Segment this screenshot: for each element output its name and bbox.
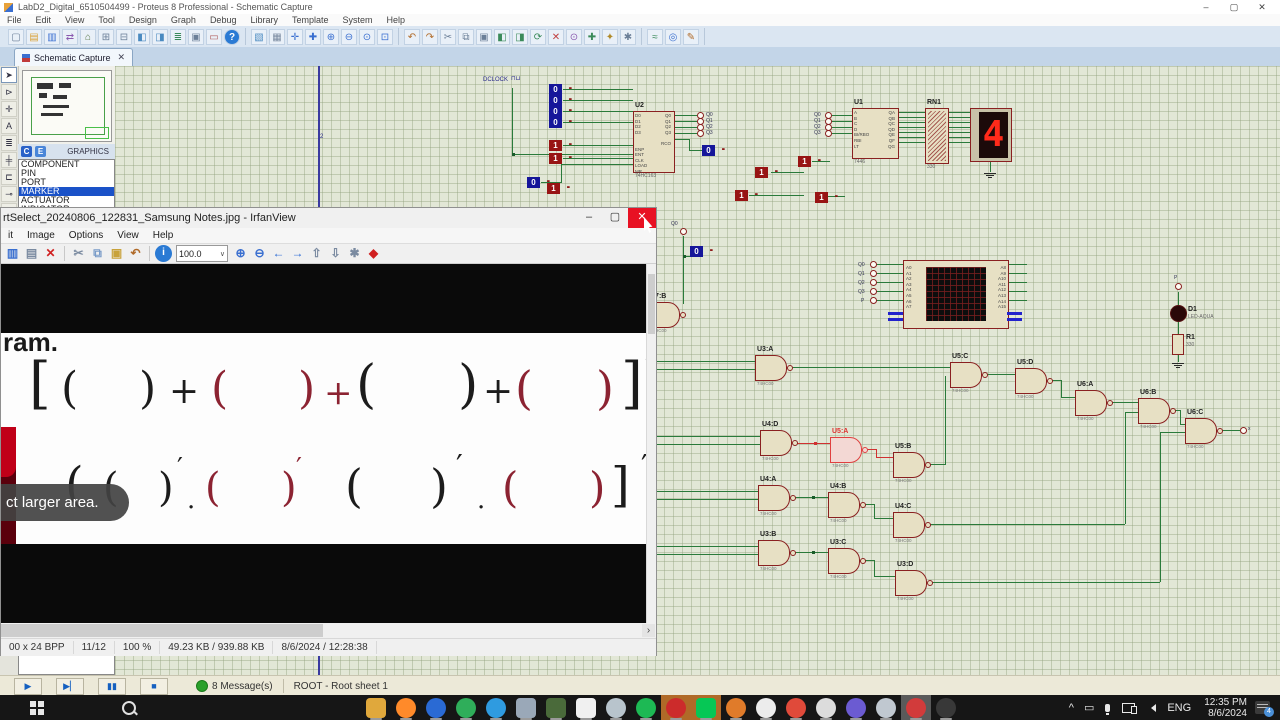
gate-part-number: 74HC00 [897, 596, 914, 601]
bus-mode-icon[interactable]: ╪ [1, 152, 17, 168]
paste-icon[interactable]: ▣ [108, 245, 125, 262]
wire [683, 236, 684, 304]
wire-label-mode-icon[interactable]: A [1, 118, 17, 134]
nand-gate-U5:B[interactable] [893, 452, 925, 478]
terminal-label: P [1174, 275, 1177, 281]
origin-icon[interactable]: ✛ [287, 29, 303, 45]
junction-dot [683, 255, 686, 258]
logic-state-1[interactable]: 1 [549, 153, 562, 164]
chip-part-number: 7446 [854, 159, 865, 165]
grid-toggle-icon[interactable]: ▦ [269, 29, 285, 45]
irfanview-menu-help[interactable]: Help [146, 230, 181, 241]
gate-part-number: 74HC00 [757, 381, 774, 386]
ground-symbol [984, 172, 996, 178]
gate-refdes: U4:D [762, 421, 778, 428]
menu-library[interactable]: Library [243, 15, 285, 25]
new-design-icon[interactable]: ▢ [8, 29, 24, 45]
taskbar-app-remote-desktop[interactable] [511, 695, 541, 720]
proteus-window-buttons: –▢✕ [1192, 0, 1276, 14]
proteus-toolbar: ▢▤▥⇄⌂⊞⊟◧◨≣▣▭?▧▦✛✚⊕⊖⊙⊡↶↷✂⧉▣◧◨⟳✕⊙✚✦✱≈◎✎ [0, 26, 1280, 47]
nand-gate-U3:A[interactable] [755, 355, 787, 381]
text-script-mode-icon[interactable]: ≣ [1, 135, 17, 151]
sim-stop-button[interactable]: ■ [140, 678, 168, 695]
subcircuit-mode-icon[interactable]: ⊏ [1, 169, 17, 185]
wire [749, 195, 804, 196]
resistor-refdes: R1 [1186, 334, 1195, 341]
equation-glyph: ) [298, 363, 315, 414]
toolbar-group: ↶↷✂⧉▣◧◨⟳✕⊙✚✦✱ [399, 28, 642, 45]
taskbar-app-app-dots[interactable] [601, 695, 631, 720]
selection-mode-icon[interactable]: ➤ [1, 67, 17, 83]
terminal-label: Q0 [858, 262, 865, 268]
wire [794, 497, 828, 498]
menu-tool[interactable]: Tool [91, 15, 122, 25]
gate-refdes: U3:B [760, 531, 776, 538]
wire [897, 137, 925, 138]
wire [874, 518, 893, 519]
terminal-P[interactable] [870, 297, 877, 304]
zoom-area-icon[interactable]: ⊡ [377, 29, 393, 45]
status-field: 11/12 [74, 641, 115, 654]
terminal-Q3[interactable] [697, 130, 704, 137]
wire [1178, 321, 1179, 334]
wire [563, 89, 633, 90]
junction-dot-mode-icon[interactable]: ✛ [1, 101, 17, 117]
menu-view[interactable]: View [58, 15, 91, 25]
equation-glyph: ) [596, 361, 614, 415]
wire [897, 142, 925, 143]
irfanview-title: rtSelect_20240806_122831_Samsung Notes.j… [1, 212, 296, 224]
chevron-down-icon: ∨ [220, 250, 225, 258]
logic-state-0[interactable]: 0 [690, 246, 703, 257]
resnet-value: 330 [927, 164, 935, 170]
wire [947, 117, 970, 118]
wire [929, 524, 1125, 525]
irfanview-menu-it[interactable]: it [1, 230, 20, 241]
toolbar-group: ≈◎✎ [642, 28, 705, 45]
nand-gate-U5:A[interactable] [830, 437, 862, 463]
last-image-icon[interactable]: ⇩ [327, 245, 344, 262]
zoom-level-combo[interactable]: 100.0∨ [176, 245, 228, 262]
gate-refdes: U3:C [830, 539, 846, 546]
nand-gate-U3:C[interactable] [828, 548, 860, 574]
print-icon[interactable]: ▤ [23, 245, 40, 262]
block-delete-icon[interactable]: ✕ [548, 29, 564, 45]
prev-sheet-icon[interactable]: ◧ [134, 29, 150, 45]
wire [673, 115, 697, 116]
wire-autorouter-icon[interactable]: ≈ [647, 29, 663, 45]
zoom-out-icon[interactable]: ⊖ [341, 29, 357, 45]
wire [657, 554, 758, 555]
wire [673, 139, 689, 140]
equation-glyph: ) [589, 463, 605, 512]
logic-state-1[interactable]: 1 [815, 192, 828, 203]
logic-state-0[interactable]: 0 [702, 145, 715, 156]
irfanview-maximize-button[interactable]: ▢ [602, 208, 628, 228]
search-tag-icon[interactable]: ◎ [665, 29, 681, 45]
preview-mark [41, 113, 63, 116]
zoom-all-icon[interactable]: ⊙ [359, 29, 375, 45]
block-rotate-icon[interactable]: ⟳ [530, 29, 546, 45]
bus-connector [888, 318, 903, 321]
taskbar-app-app-fox[interactable] [751, 695, 781, 720]
schematic-overview-preview[interactable] [22, 70, 112, 142]
irfanview-menu-options[interactable]: Options [62, 230, 110, 241]
chip-right-pins: QA QB QC QD QE QF QG [852, 110, 895, 149]
terminal-label: x [1248, 426, 1251, 432]
cut-icon[interactable]: ✂ [440, 29, 456, 45]
open-design-icon[interactable]: ▤ [26, 29, 42, 45]
browser-compass-icon [486, 698, 506, 718]
menu-debug[interactable]: Debug [203, 15, 244, 25]
equation-glyph: · [477, 493, 485, 523]
toolbar-group: ▧▦✛✚⊕⊖⊙⊡ [246, 28, 399, 45]
save-icon[interactable]: ▥ [4, 245, 21, 262]
irfanview-menu-image[interactable]: Image [20, 230, 62, 241]
nand-gate-U3:B[interactable] [758, 540, 790, 566]
taskbar-app-app-blue-orb[interactable] [421, 695, 451, 720]
preview-mark [39, 93, 47, 98]
sim-step-button[interactable]: ▶▏ [56, 678, 84, 695]
equation-glyph: ] [611, 457, 630, 513]
zoom-in-icon[interactable]: ⊕ [232, 245, 249, 262]
proteus-app-icon [4, 3, 13, 12]
prev-image-icon[interactable]: ← [270, 245, 287, 262]
app-green-orb-icon [456, 698, 476, 718]
irfanview-bird-icon[interactable]: ◆ [365, 245, 382, 262]
copy-icon[interactable]: ⧉ [89, 245, 106, 262]
terminal-Q0[interactable] [870, 261, 877, 268]
chip-right-pins: Q0 Q1 Q2 Q3 RCO [633, 113, 671, 147]
taskbar-app-app-search-orange[interactable] [721, 695, 751, 720]
equation-glyph: ′ [296, 453, 302, 483]
gate-part-number: 74HC00 [1140, 424, 1157, 429]
menu-system[interactable]: System [336, 15, 380, 25]
first-image-icon[interactable]: ⇧ [308, 245, 325, 262]
terminal-x[interactable] [1240, 427, 1247, 434]
tray-chevron-icon[interactable]: ^ [1069, 702, 1074, 714]
wire [563, 145, 633, 146]
import-section-icon[interactable]: ⇄ [62, 29, 78, 45]
matrix-display-chip[interactable]: A0 A1 A2 A3 A4 A5 A6 A7A8 A9 A10 A11 A12… [903, 260, 1009, 329]
property-assignment-icon[interactable]: ✎ [683, 29, 699, 45]
terminal-Q3[interactable] [825, 130, 832, 137]
remove-sheet-icon[interactable]: ⊟ [116, 29, 132, 45]
wire [875, 273, 903, 274]
status-field: 8/6/2024 / 12:28:38 [273, 641, 376, 654]
remote-desktop-icon [516, 698, 536, 718]
toolbar-group: ▢▤▥⇄⌂⊞⊟◧◨≣▣▭? [3, 28, 246, 45]
logic-state-0[interactable]: 0 [549, 117, 562, 128]
design-explorer-icon[interactable]: ≣ [170, 29, 186, 45]
tab-close-icon[interactable]: ✕ [118, 52, 126, 63]
info-icon[interactable]: i [155, 245, 172, 262]
wire [1007, 282, 1027, 283]
terminal-label: Q3 [858, 289, 865, 295]
proteus-titlebar: LabD2_Digital_6510504499 - Proteus 8 Pro… [0, 0, 1280, 14]
led-type: LED-AQUA [1188, 314, 1214, 320]
status-field: 00 x 24 BPP [1, 641, 74, 654]
taskbar-app-proteus[interactable] [541, 695, 571, 720]
speaker-icon[interactable] [1147, 704, 1156, 712]
wire [1160, 432, 1185, 433]
notification-badge: 4 [1264, 707, 1274, 717]
hscroll-right-arrow[interactable]: › [642, 624, 655, 637]
bus-connector [888, 312, 903, 315]
taskbar-app-firefox[interactable] [391, 695, 421, 720]
equation-glyph: ( [515, 361, 533, 415]
resistor-R1[interactable] [1172, 334, 1184, 355]
taskbar-app-app-purple-bird[interactable] [841, 695, 871, 720]
taskbar-search-icon[interactable] [122, 701, 136, 715]
taskbar-app-app-dark-dot[interactable] [931, 695, 961, 720]
decompose-icon[interactable]: ✱ [620, 29, 636, 45]
wire [689, 139, 690, 150]
junction-dot [812, 496, 815, 499]
delete-icon[interactable]: ✕ [42, 245, 59, 262]
messages-icon[interactable] [196, 680, 208, 692]
ground-symbol [1172, 362, 1184, 368]
irfanview-close-button[interactable]: ✕ [628, 208, 656, 228]
menu-graph[interactable]: Graph [164, 15, 203, 25]
nand-gate-U4:C[interactable] [893, 512, 925, 538]
taskbar-app-notepad[interactable] [571, 695, 601, 720]
terminal-Q2[interactable] [870, 279, 877, 286]
nand-gate-U3:D[interactable] [895, 570, 927, 596]
tray-tablet-icon[interactable]: ▭ [1084, 701, 1094, 714]
seven-segment-digit: 4 [979, 112, 1008, 158]
preview-mark [43, 105, 69, 108]
gate-refdes: U4:A [760, 476, 776, 483]
nand-gate-U4:A[interactable] [758, 485, 790, 511]
copy-icon[interactable]: ⧉ [458, 29, 474, 45]
irfanview-vertical-scrollbar[interactable] [646, 264, 656, 623]
wire [791, 367, 950, 368]
new-page-icon[interactable]: ▣ [188, 29, 204, 45]
junction-dot [812, 551, 815, 554]
paste-icon[interactable]: ▣ [476, 29, 492, 45]
toolbar-separator [64, 246, 65, 261]
wire [657, 444, 760, 445]
pan-icon[interactable]: ✚ [305, 29, 321, 45]
terminal-Q1[interactable] [870, 270, 877, 277]
wire [875, 300, 903, 301]
irfanview-menu-view[interactable]: View [110, 230, 146, 241]
spotify-icon [636, 698, 656, 718]
schematic-label: DCLOCK [483, 77, 508, 83]
redraw-icon[interactable]: ▧ [251, 29, 267, 45]
wire [931, 582, 1160, 583]
gate-part-number: 74HC00 [830, 518, 847, 523]
clock-time: 12:35 PM [1204, 697, 1247, 708]
irfanview-titlebar: rtSelect_20240806_122831_Samsung Notes.j… [1, 208, 656, 228]
gate-refdes: U4:C [895, 503, 911, 510]
wire [812, 161, 830, 162]
selected-wire [876, 457, 893, 458]
terminal-label: Q3 [706, 130, 713, 136]
wire [897, 132, 925, 133]
block-copy-icon[interactable]: ◧ [494, 29, 510, 45]
nand-gate-U5:D[interactable] [1015, 368, 1047, 394]
terminal-mode-icon[interactable]: ⊸ [1, 186, 17, 202]
block-move-icon[interactable]: ◨ [512, 29, 528, 45]
logic-state-1[interactable]: 1 [798, 156, 811, 167]
gate-refdes: U5:B [895, 443, 911, 450]
schematic-tab-icon [22, 54, 30, 62]
undo-icon[interactable]: ↶ [127, 245, 144, 262]
gate-refdes: U6:A [1077, 381, 1093, 388]
irfanview-horizontal-scrollbar[interactable]: › [1, 623, 656, 638]
status-field: 100 % [115, 641, 160, 654]
wire [512, 88, 513, 155]
home-page-icon[interactable]: ⌂ [80, 29, 96, 45]
preview-viewport-box [85, 127, 109, 139]
pick-devices-button[interactable]: C [21, 146, 32, 157]
proteus-minimize-button[interactable]: – [1192, 0, 1220, 14]
terminal-label: Q1 [858, 271, 865, 277]
proteus-maximize-button[interactable]: ▢ [1220, 0, 1248, 14]
menu-design[interactable]: Design [122, 15, 164, 25]
terminal-P[interactable] [1175, 283, 1182, 290]
equation-glyph: ) [430, 459, 448, 513]
next-image-icon[interactable]: → [289, 245, 306, 262]
zoom-in-icon[interactable]: ⊕ [323, 29, 339, 45]
led-D1[interactable] [1170, 305, 1187, 322]
seven-segment-display[interactable]: 4 [970, 108, 1012, 162]
packaging-tool-icon[interactable]: ✦ [602, 29, 618, 45]
terminal-label: Q2 [858, 280, 865, 286]
system-tray: ^ ▭ ENG 12:35 PM 8/6/2024 4 [1064, 695, 1280, 720]
menu-edit[interactable]: Edit [29, 15, 59, 25]
new-sheet-icon[interactable]: ⊞ [98, 29, 114, 45]
taskbar-app-app-red-badge[interactable] [901, 695, 931, 720]
taskbar-app-irfanview[interactable] [661, 695, 691, 720]
matrix-right-pins: A8 A9 A10 A11 A12 A13 A14 A15 [998, 265, 1006, 310]
nand-gate-U6:B[interactable] [1138, 398, 1170, 424]
proteus-icon [546, 698, 566, 718]
terminal-Q0[interactable] [680, 228, 687, 235]
edit-devices-button[interactable]: E [35, 146, 46, 157]
logic-state-0[interactable]: 0 [549, 95, 562, 106]
wire [1007, 291, 1027, 292]
wire [657, 369, 755, 370]
wire [947, 137, 970, 138]
redo-icon[interactable]: ↷ [422, 29, 438, 45]
clock[interactable]: 12:35 PM 8/6/2024 [1204, 697, 1247, 719]
irfanview-image-view[interactable]: ram. [()+()+()+()]″ (()′·()′()′·()]′ ct … [1, 264, 656, 623]
cut-icon[interactable]: ✂ [70, 245, 87, 262]
taskbar-app-chrome[interactable] [781, 695, 811, 720]
taskbar-app-spotify[interactable] [631, 695, 661, 720]
gate-part-number: 74HC00 [760, 511, 777, 516]
logic-state-0[interactable]: 0 [527, 177, 540, 188]
messages-count[interactable]: 8 Message(s) [212, 681, 273, 692]
logic-state-0[interactable]: 0 [549, 106, 562, 117]
status-field: 49.23 KB / 939.88 KB [160, 641, 273, 654]
irfanview-toolbar: ▥▤✕✂⧉▣↶i100.0∨⊕⊖←→⇧⇩✱◆ [1, 243, 656, 264]
taskbar-app-app-green-orb[interactable] [451, 695, 481, 720]
wire [657, 436, 760, 437]
start-button-icon[interactable] [30, 701, 44, 715]
wire [561, 164, 562, 183]
graphics-label: GRAPHICS [46, 147, 115, 156]
logic-state-1[interactable]: 1 [549, 140, 562, 151]
zoom-out-icon[interactable]: ⊖ [251, 245, 268, 262]
taskbar-app-app-spider[interactable] [871, 695, 901, 720]
nand-gate-U6:A[interactable] [1075, 390, 1107, 416]
chrome-icon [786, 698, 806, 718]
wire [1178, 292, 1179, 305]
wire [794, 552, 828, 553]
preview-mark [37, 83, 53, 89]
gate-part-number: 74HC00 [760, 566, 777, 571]
app-spider-icon [876, 698, 896, 718]
wire [689, 150, 702, 151]
gate-part-number: 74HC00 [762, 456, 779, 461]
taskbar-app-file-explorer[interactable] [361, 695, 391, 720]
wire [897, 127, 925, 128]
equation-glyph: ( [345, 459, 363, 513]
logic-state-1[interactable]: 1 [755, 167, 768, 178]
notification-center-icon[interactable]: 4 [1255, 701, 1270, 714]
properties-icon[interactable]: ✱ [346, 245, 363, 262]
irfanview-minimize-button[interactable]: – [576, 208, 602, 228]
menu-file[interactable]: File [0, 15, 29, 25]
remove-page-icon[interactable]: ▭ [206, 29, 222, 45]
wire [563, 122, 633, 123]
sim-play-button[interactable]: ▶ [14, 678, 42, 695]
component-mode-icon[interactable]: ⊳ [1, 84, 17, 100]
gate-refdes: U5:A [832, 428, 848, 435]
junction-dot [814, 442, 817, 445]
microphone-icon[interactable] [1105, 704, 1110, 712]
taskbar-app-line[interactable] [691, 695, 721, 720]
firefox-icon [396, 698, 416, 718]
proteus-close-button[interactable]: ✕ [1248, 0, 1276, 14]
nand-gate-U5:C[interactable] [950, 362, 982, 388]
nand-gate-U4:B[interactable] [828, 492, 860, 518]
menu-help[interactable]: Help [380, 15, 413, 25]
taskbar-app-browser-compass[interactable] [481, 695, 511, 720]
logic-state-0[interactable]: 0 [549, 84, 562, 95]
pick-parts-icon[interactable]: ⊙ [566, 29, 582, 45]
sim-pause-button[interactable]: ▮▮ [98, 678, 126, 695]
logic-state-1[interactable]: 1 [735, 190, 748, 201]
resistor-network-RN1[interactable] [925, 108, 949, 164]
terminal-Q3[interactable] [870, 288, 877, 295]
nand-gate-U6:C[interactable] [1185, 418, 1217, 444]
wire [1221, 430, 1240, 431]
network-icon[interactable] [1122, 703, 1135, 713]
next-sheet-icon[interactable]: ◨ [152, 29, 168, 45]
undo-icon[interactable]: ↶ [404, 29, 420, 45]
schematic-label: 2 [320, 134, 323, 140]
nand-gate-U4:D[interactable] [760, 430, 792, 456]
make-device-icon[interactable]: ✚ [584, 29, 600, 45]
equation-glyph: ) [158, 465, 174, 511]
gate-part-number: 74HC00 [830, 574, 847, 579]
equation-glyph: ( [205, 465, 221, 511]
logic-state-1[interactable]: 1 [547, 183, 560, 194]
language-indicator[interactable]: ENG [1167, 702, 1191, 714]
help-icon[interactable]: ? [224, 29, 240, 45]
tab-schematic-capture[interactable]: Schematic Capture ✕ [14, 48, 133, 66]
hscroll-thumb[interactable] [1, 624, 323, 637]
save-design-icon[interactable]: ▥ [44, 29, 60, 45]
menu-template[interactable]: Template [285, 15, 336, 25]
wire [875, 282, 903, 283]
taskbar-app-app-white-orb[interactable] [811, 695, 841, 720]
